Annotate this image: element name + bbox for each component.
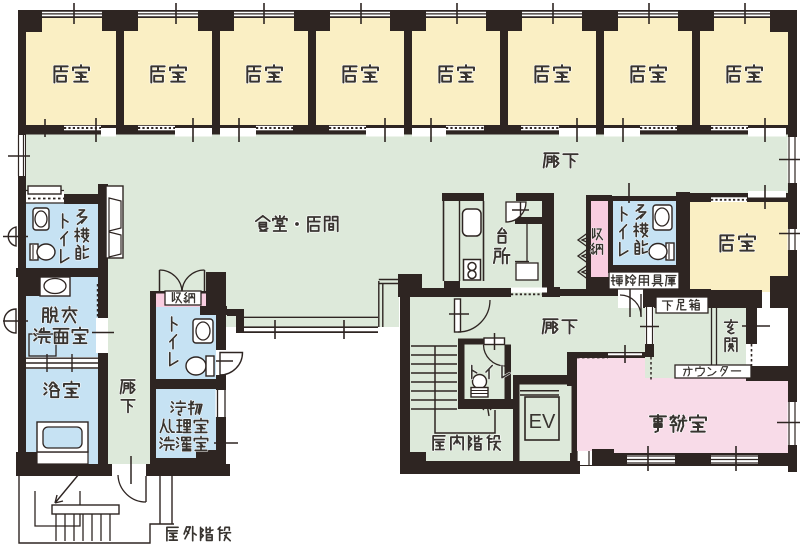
svg-text:EV: EV [529,411,556,433]
